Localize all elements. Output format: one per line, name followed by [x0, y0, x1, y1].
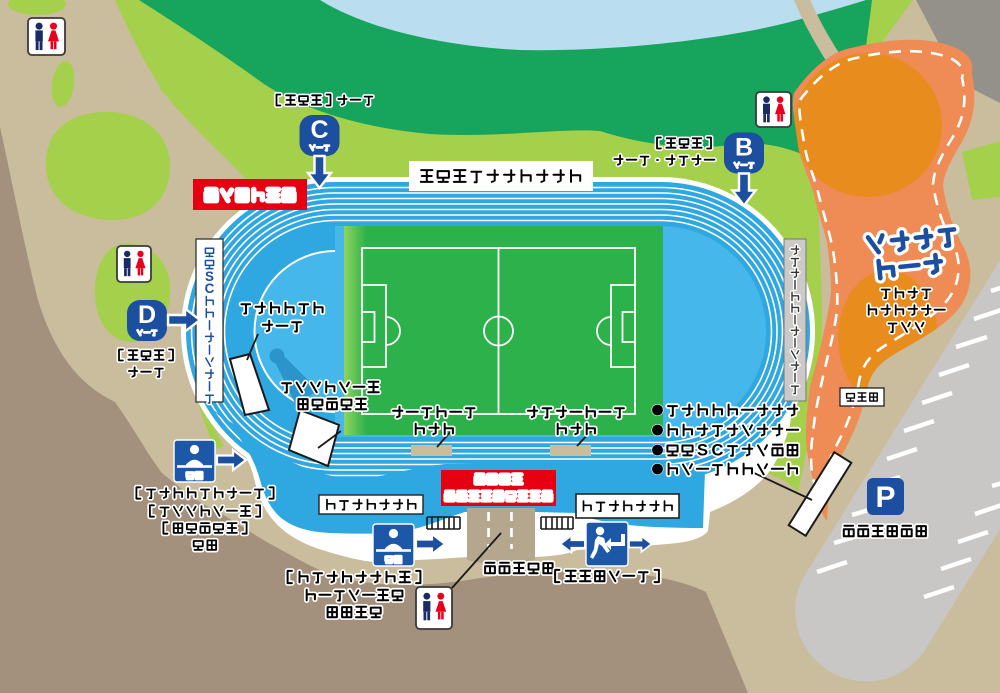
svg-text:B: B	[735, 134, 753, 162]
svg-text:C: C	[712, 441, 724, 459]
svg-text:C: C	[205, 281, 215, 296]
svg-text:S: S	[697, 441, 708, 459]
svg-text:C: C	[310, 116, 328, 144]
svg-text:P: P	[875, 481, 895, 514]
svg-text:D: D	[138, 301, 156, 329]
